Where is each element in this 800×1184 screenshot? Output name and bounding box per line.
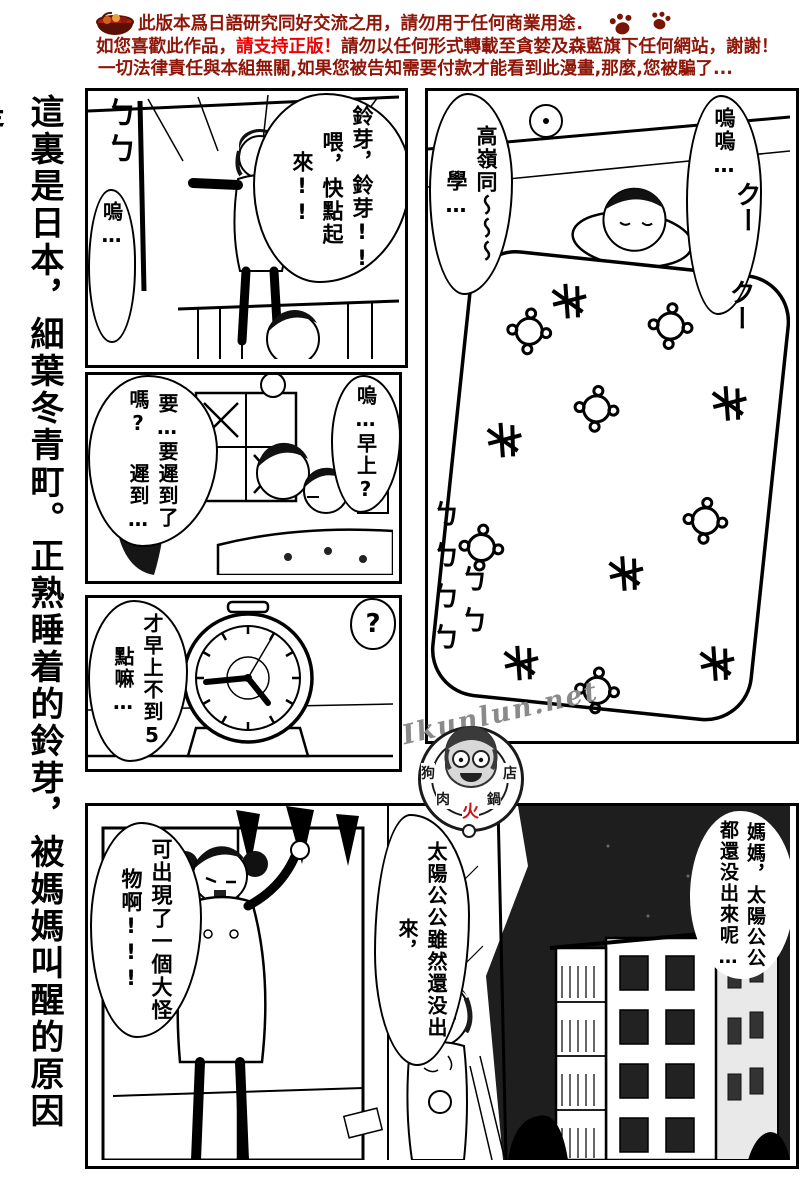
header-line-2: 如您喜歡此作品，請支持正版！請勿以任何形式轉載至貪婪及森藍旗下任何網站，謝謝！ [96,37,779,58]
logo-ring-char-3: 火 [462,797,479,822]
panel-morning-question: 要…要遲到了嗎? 遲到… 嗚…早上? [85,372,402,584]
sfx-curtain: ㄅㄅ [96,97,140,169]
header-line-2-highlight: 請支持正版！ [236,37,341,57]
logo-ring-char-4: 鍋 [487,789,501,809]
bubble-mama-sun-text: 媽媽，太陽公公都還没出來呢… [715,819,769,971]
panel-wake-up-call: ㄅㄅ 鈴芽，鈴芽!! 喂，快點起來!! 嗚… [85,88,408,368]
logo-ring-char-1: 狗 [421,763,435,783]
logo-ring-char-5: 店 [503,763,517,783]
bubble-monster-shout-text: 可出現了一個大怪物啊!!! [116,832,176,1028]
panel-alarm-clock: 才早上不到5點嘛… ? [85,595,402,772]
sfx-breath-2: クー [722,279,759,331]
bubble-question-mark: ? [350,598,396,650]
watermark-logo-knob [462,824,476,838]
bubble-moan-text: 嗚嗚… [709,107,739,179]
side-caption: 這裏是日本，細葉冬青町。正熟睡着的鈴芽，被媽媽叫醒的原因是…………!! [14,94,74,1169]
header-line-3: 一切法律責任與本組無關,如果您被告知需要付款才能看到此漫畫,那麼,您被騙了... [98,59,733,80]
bubble-question-mark-text: ? [365,609,380,639]
bubble-late-question-text: 要…要遲到了嗎? 遲到… [124,385,182,537]
header-line-1-text: 此版本爲日語研究同好交流之用，請勿用于任何商業用途． [138,14,593,34]
header-line-1: 此版本爲日語研究同好交流之用，請勿用于任何商業用途． [138,14,593,35]
panel-dawn-window: 可出現了一個大怪物啊!!! 太陽公公雖然還没出來， 媽媽，太陽公公都還没出來呢… [85,803,799,1169]
sfx-breath-1: クー [728,181,765,233]
bubble-sleep-moan: 嗚… [88,189,136,343]
bubble-not-even-five-text: 才早上不到5點嘛… [109,610,167,752]
bubble-sleep-moan-text: 嗚… [98,201,127,249]
bubble-wake-question-text: 嗚…早上? [352,385,381,503]
header-line-2-suffix: 請勿以任何形式轉載至貪婪及森藍旗下任何網站，謝謝！ [341,37,779,57]
bubble-sleep-talk-text: 高嶺同～～～學… [441,103,501,285]
header-line-2-prefix: 如您喜歡此作品， [96,37,236,57]
bubble-mama-sun: 媽媽，太陽公公都還没出來呢… [690,811,794,979]
watermark-logo-face [438,723,504,795]
bubble-sleep-talk: 高嶺同～～～學… [429,93,513,295]
manga-page: 此版本爲日語研究同好交流之用，請勿用于任何商業用途． 如您喜歡此作品，請支持正版… [0,0,800,1184]
header-notice: 此版本爲日語研究同好交流之用，請勿用于任何商業用途． 如您喜歡此作品，請支持正版… [92,6,796,82]
bubble-sun-not-up-text: 太陽公公雖然還没出來， [393,826,451,1054]
watermark-logo: 狗 肉 火 鍋 店 [418,726,524,832]
sfx-snore-column-2: ㄅㄅ [452,565,491,647]
logo-ring-char-2: 肉 [436,789,450,809]
bubble-wake-shout-text: 鈴芽，鈴芽!! 喂，快點起來!! [287,103,377,273]
